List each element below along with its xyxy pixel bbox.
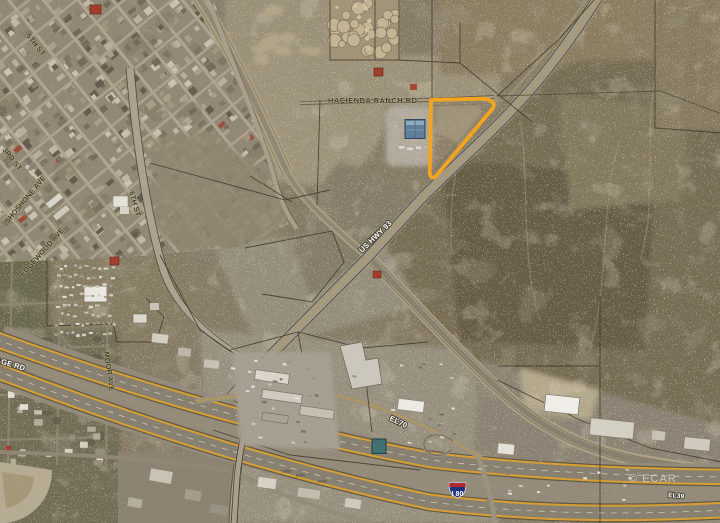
svg-text:EL39: EL39 [668,492,685,500]
svg-text:© ECAR: © ECAR [629,473,677,485]
svg-text:HACIENDA RANCH RD: HACIENDA RANCH RD [328,96,418,105]
svg-text:I 80: I 80 [452,491,464,498]
